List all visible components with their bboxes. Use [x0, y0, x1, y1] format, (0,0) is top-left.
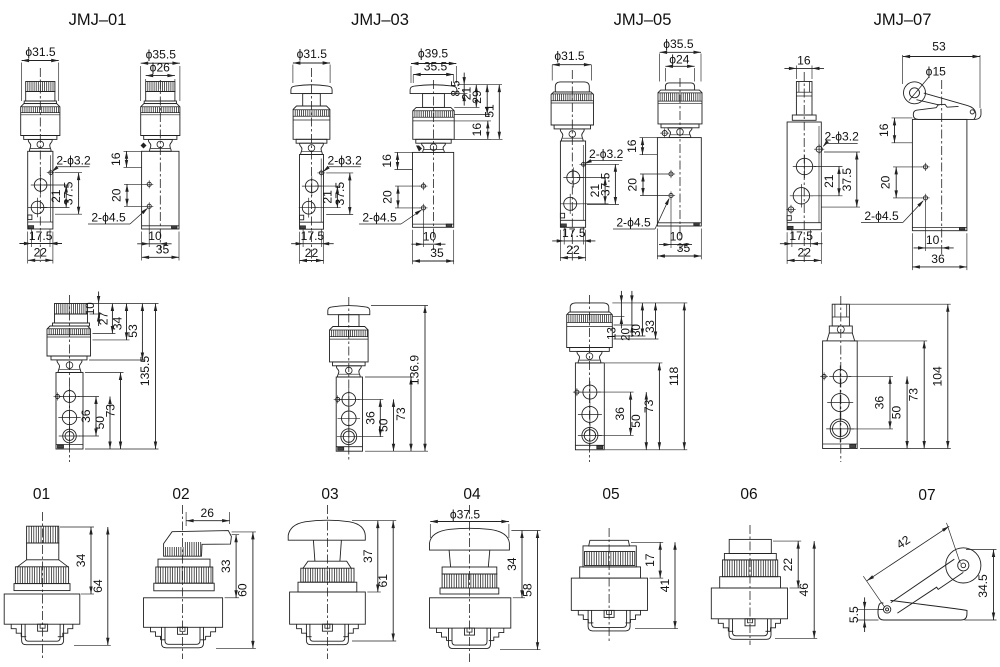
svg-text:20: 20: [626, 178, 640, 192]
svg-text:73: 73: [907, 388, 921, 402]
svg-text:ϕ31.5: ϕ31.5: [297, 47, 328, 61]
svg-text:JMJ–07: JMJ–07: [874, 11, 932, 29]
svg-text:21: 21: [822, 174, 836, 188]
svg-text:ϕ24: ϕ24: [669, 53, 689, 67]
svg-text:17: 17: [643, 553, 657, 567]
svg-text:2-ϕ3.2: 2-ϕ3.2: [56, 154, 91, 168]
svg-text:60: 60: [235, 583, 249, 597]
svg-text:118: 118: [667, 366, 681, 386]
svg-text:17.5: 17.5: [29, 229, 53, 243]
svg-text:29: 29: [470, 90, 484, 104]
svg-text:JMJ–05: JMJ–05: [614, 11, 672, 29]
svg-text:16: 16: [380, 154, 394, 168]
svg-text:64: 64: [91, 579, 105, 593]
svg-text:37.5: 37.5: [333, 182, 347, 206]
svg-text:02: 02: [172, 486, 189, 503]
svg-text:16: 16: [797, 53, 811, 67]
svg-text:37: 37: [361, 549, 375, 563]
svg-text:13: 13: [607, 327, 619, 340]
svg-text:04: 04: [463, 486, 481, 503]
svg-text:53: 53: [126, 324, 140, 338]
svg-text:34: 34: [74, 554, 88, 568]
svg-text:41: 41: [658, 579, 672, 593]
svg-text:2-ϕ4.5: 2-ϕ4.5: [91, 211, 126, 225]
svg-text:53: 53: [932, 40, 946, 54]
svg-text:10: 10: [85, 302, 97, 315]
svg-text:35.5: 35.5: [424, 60, 448, 74]
svg-text:22: 22: [797, 246, 811, 260]
svg-text:10: 10: [423, 229, 437, 243]
svg-text:20: 20: [879, 175, 893, 189]
svg-text:37.5: 37.5: [840, 168, 854, 192]
svg-text:ϕ26: ϕ26: [150, 61, 170, 75]
svg-text:5.5: 5.5: [847, 606, 861, 623]
svg-text:ϕ37.5: ϕ37.5: [450, 508, 481, 522]
svg-text:51: 51: [482, 104, 496, 118]
svg-text:136.9: 136.9: [408, 355, 422, 386]
svg-text:135.5: 135.5: [138, 356, 152, 387]
svg-text:17.5: 17.5: [301, 229, 325, 243]
svg-text:33: 33: [645, 320, 657, 333]
svg-text:16: 16: [877, 123, 891, 137]
svg-text:35: 35: [677, 241, 691, 255]
svg-text:2-ϕ3.2: 2-ϕ3.2: [328, 154, 363, 168]
svg-text:ϕ15: ϕ15: [926, 65, 946, 79]
svg-text:36: 36: [931, 252, 945, 266]
svg-text:16: 16: [625, 139, 639, 153]
svg-text:2-ϕ4.5: 2-ϕ4.5: [362, 211, 397, 225]
svg-text:16: 16: [470, 123, 484, 137]
svg-text:36: 36: [613, 407, 627, 421]
svg-text:2-ϕ4.5: 2-ϕ4.5: [616, 216, 651, 230]
svg-text:37.5: 37.5: [598, 172, 612, 196]
svg-text:36: 36: [79, 409, 93, 423]
svg-text:20: 20: [110, 188, 124, 202]
svg-text:34.5: 34.5: [976, 574, 990, 598]
svg-text:37.5: 37.5: [62, 181, 76, 205]
svg-text:73: 73: [642, 399, 656, 413]
svg-text:50: 50: [890, 406, 904, 420]
svg-text:50: 50: [377, 418, 391, 432]
svg-text:2-ϕ3.2: 2-ϕ3.2: [825, 129, 860, 143]
svg-text:JMJ–01: JMJ–01: [69, 11, 127, 29]
svg-text:07: 07: [918, 487, 935, 504]
svg-text:26: 26: [200, 506, 214, 520]
svg-text:35: 35: [156, 242, 170, 256]
svg-text:58: 58: [521, 583, 535, 597]
svg-text:JMJ–03: JMJ–03: [351, 11, 409, 29]
svg-text:17.5: 17.5: [789, 229, 813, 243]
svg-text:22: 22: [781, 558, 795, 572]
svg-text:03: 03: [321, 486, 338, 503]
svg-text:30: 30: [631, 324, 643, 337]
svg-text:35: 35: [430, 246, 444, 260]
svg-text:16: 16: [109, 152, 123, 166]
svg-text:17.5: 17.5: [562, 226, 586, 240]
svg-text:46: 46: [797, 583, 811, 597]
svg-text:34: 34: [505, 557, 519, 571]
svg-text:ϕ31.5: ϕ31.5: [554, 49, 585, 63]
svg-text:104: 104: [930, 366, 944, 386]
svg-text:36: 36: [873, 396, 887, 410]
svg-text:20: 20: [381, 190, 395, 204]
svg-text:06: 06: [740, 486, 757, 503]
svg-text:34: 34: [111, 317, 125, 331]
svg-text:73: 73: [104, 404, 118, 418]
svg-text:22: 22: [566, 243, 580, 257]
svg-text:2-ϕ4.5: 2-ϕ4.5: [864, 209, 899, 223]
svg-text:22: 22: [34, 246, 48, 260]
svg-text:ϕ39.5: ϕ39.5: [418, 47, 449, 61]
svg-text:ϕ35.5: ϕ35.5: [663, 37, 694, 51]
svg-text:10: 10: [148, 229, 162, 243]
svg-text:ϕ31.5: ϕ31.5: [25, 45, 56, 59]
svg-text:33: 33: [219, 559, 233, 573]
svg-text:ϕ35.5: ϕ35.5: [146, 48, 177, 62]
svg-text:27: 27: [96, 312, 110, 326]
svg-text:36: 36: [363, 411, 377, 425]
svg-text:01: 01: [33, 486, 50, 503]
svg-text:22: 22: [305, 246, 319, 260]
svg-text:2-ϕ3.2: 2-ϕ3.2: [589, 147, 624, 161]
svg-text:05: 05: [602, 486, 619, 503]
svg-text:61: 61: [376, 574, 390, 588]
svg-text:73: 73: [394, 407, 408, 421]
svg-text:50: 50: [629, 414, 643, 428]
svg-text:10: 10: [926, 233, 940, 247]
